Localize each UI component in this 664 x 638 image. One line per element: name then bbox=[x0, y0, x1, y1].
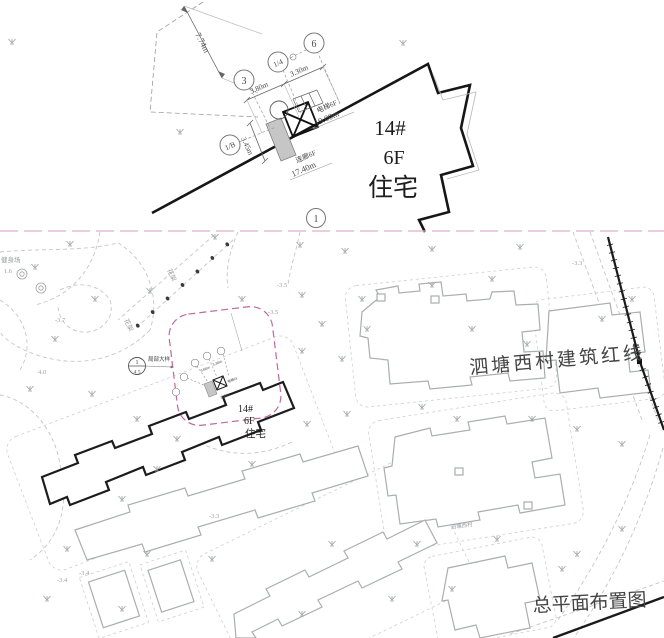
callout-bubble: 1 4.5 局部大样 bbox=[129, 355, 173, 376]
callout-label: 局部大样 bbox=[148, 355, 171, 363]
building-label-detail: 14# 6F 住宅 bbox=[368, 116, 418, 202]
spot-8: -3.4 bbox=[57, 577, 68, 584]
node-circle bbox=[290, 54, 296, 60]
bubble-6-label: 6 bbox=[312, 39, 317, 50]
bubble-1-label: 1 bbox=[314, 214, 319, 225]
cad-sheet: 7.74m bbox=[0, 0, 664, 638]
drawing-canvas: 7.74m bbox=[0, 0, 664, 638]
area-label-pergola-1: 花架 bbox=[165, 267, 179, 283]
spot-1: -3.7 bbox=[55, 317, 66, 324]
detail-view: 7.74m bbox=[9, 2, 480, 232]
callout-sheet: 4.5 bbox=[134, 370, 141, 376]
area-label-pergola-2: 花架 bbox=[122, 317, 136, 333]
mini-dim-330: 3.30m bbox=[212, 358, 224, 367]
dim-330-label: 3.30m bbox=[288, 63, 309, 79]
detail-boundary-dashed bbox=[150, 2, 258, 117]
spot-2: -3.5 bbox=[277, 282, 287, 289]
stair-hatch-block bbox=[266, 118, 296, 161]
spot-3: -3.5 bbox=[268, 309, 278, 316]
spot-6: -3.3 bbox=[209, 513, 219, 520]
tree-symbols bbox=[17, 269, 46, 293]
spot-7: -3.4 bbox=[79, 570, 90, 577]
dim-345-label: 3.45m bbox=[239, 135, 255, 156]
redline-boundary bbox=[553, 237, 664, 638]
annotation-elevator: 电梯6F 19.00m bbox=[313, 98, 354, 129]
bubble-3-label: 3 bbox=[242, 76, 247, 87]
building-number: 14# bbox=[374, 116, 406, 140]
mini-elevator-label: 电梯6F bbox=[227, 375, 239, 384]
area-label-gym: 健身场 bbox=[1, 255, 21, 264]
mini-building-number: 14# bbox=[238, 404, 253, 415]
grass-symbols-detail bbox=[9, 39, 407, 134]
spot-5: 4.0 bbox=[38, 369, 46, 376]
building-type: 住宅 bbox=[368, 174, 418, 202]
callout-number: 1 bbox=[135, 359, 138, 366]
mini-building-type: 住宅 bbox=[245, 427, 266, 440]
spot-0: 1.6 bbox=[4, 268, 13, 275]
walkway bbox=[118, 235, 233, 328]
dim-774-label: 7.74m bbox=[193, 31, 212, 55]
site-plan: 3.80m 3.30m 电梯6F 连廊6F 14# 6F 住宅 1 4.5 局部… bbox=[0, 231, 664, 638]
annotation-corridor: 连廊6F 17.40m bbox=[290, 148, 332, 180]
building-floors: 6F bbox=[383, 147, 404, 169]
mini-building-floors: 6F bbox=[244, 416, 255, 427]
plan-title: 总平面布置图 bbox=[532, 589, 647, 617]
column-circle bbox=[270, 101, 288, 119]
building-outline-detail bbox=[152, 64, 473, 232]
spot-4: -3.3 bbox=[572, 260, 582, 267]
